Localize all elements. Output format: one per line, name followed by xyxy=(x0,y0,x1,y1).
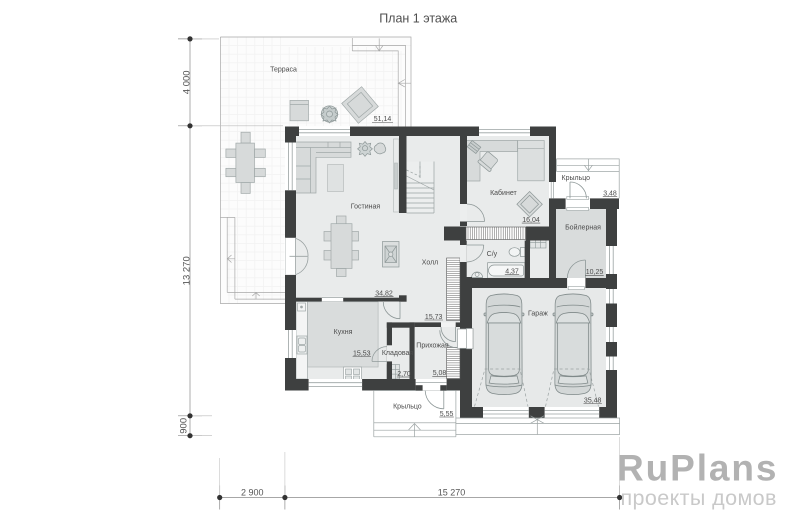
svg-text:Крыльцо: Крыльцо xyxy=(393,404,422,411)
svg-text:51,14: 51,14 xyxy=(374,116,392,123)
svg-text:Холл: Холл xyxy=(422,260,439,267)
svg-text:13 270: 13 270 xyxy=(182,256,193,285)
svg-text:проекты домов: проекты домов xyxy=(621,486,777,510)
svg-text:Гостиная: Гостиная xyxy=(351,204,381,211)
svg-text:Крыльцо: Крыльцо xyxy=(562,175,591,182)
svg-text:С/у: С/у xyxy=(487,251,498,258)
svg-text:Кладовая: Кладовая xyxy=(382,350,414,357)
svg-text:Прихожая: Прихожая xyxy=(416,342,449,349)
svg-text:2 900: 2 900 xyxy=(241,488,264,498)
svg-text:Кабинет: Кабинет xyxy=(490,189,517,197)
svg-text:Бойлерная: Бойлерная xyxy=(565,223,601,231)
svg-text:900: 900 xyxy=(179,418,190,434)
svg-text:Кухня: Кухня xyxy=(334,329,353,336)
svg-text:15 270: 15 270 xyxy=(438,488,466,498)
svg-text:4 000: 4 000 xyxy=(182,70,193,94)
svg-text:План 1 этажа: План 1 этажа xyxy=(379,12,457,26)
svg-text:RuPlans: RuPlans xyxy=(617,448,778,489)
svg-text:Терраса: Терраса xyxy=(270,67,297,74)
svg-text:Гараж: Гараж xyxy=(528,311,548,318)
